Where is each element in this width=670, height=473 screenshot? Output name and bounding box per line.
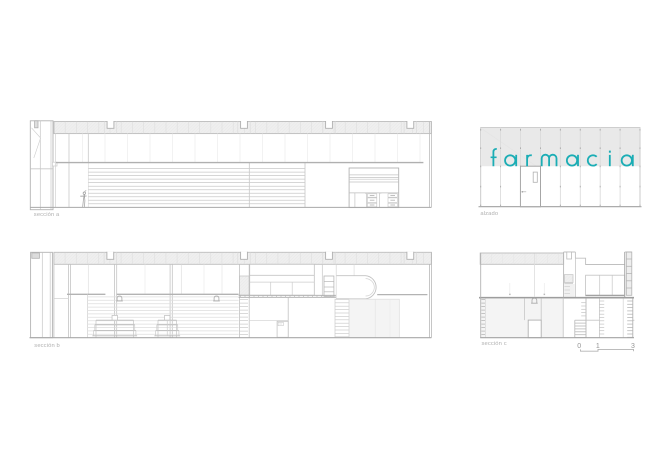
svg-text:1: 1	[596, 343, 600, 350]
svg-text:3: 3	[631, 343, 635, 350]
svg-text:sección a: sección a	[34, 212, 60, 218]
svg-text:sección b: sección b	[34, 343, 60, 349]
svg-text:sección c: sección c	[482, 341, 507, 347]
svg-text:0: 0	[577, 343, 581, 350]
svg-text:alzado: alzado	[480, 211, 498, 217]
